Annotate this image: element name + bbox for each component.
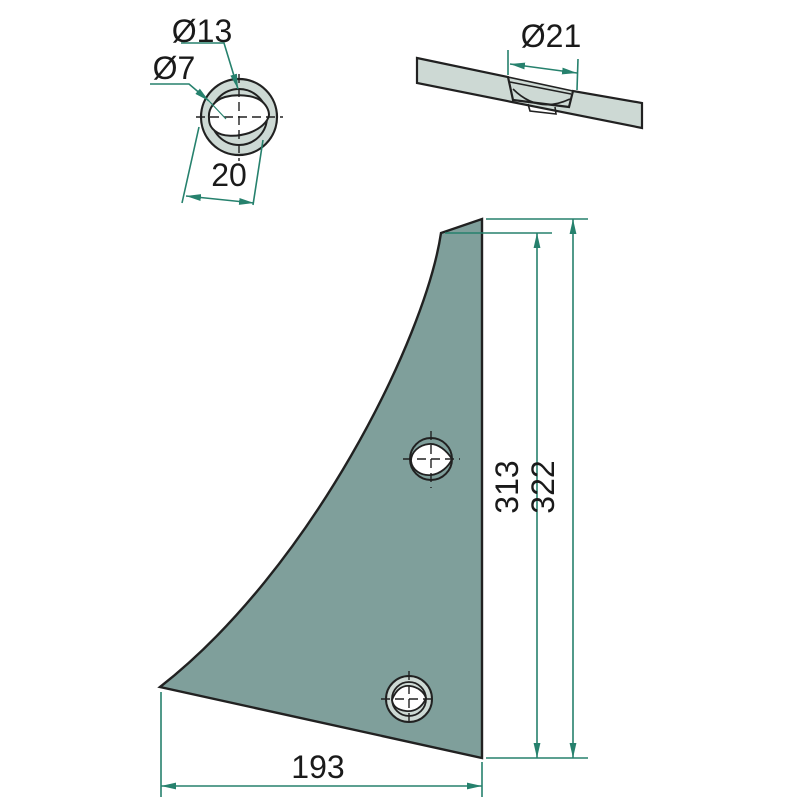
plate-outline: [160, 219, 482, 758]
dim-label-countersink: Ø21: [521, 18, 581, 54]
dim-label-height-outer: 322: [525, 460, 561, 513]
countersink-section-view: Ø21: [417, 18, 642, 128]
dim-countersink-line: [510, 64, 577, 73]
dim-label-width: 193: [291, 749, 344, 785]
leader-square-hole: [150, 84, 209, 101]
dim-od-line: [186, 196, 254, 203]
dim-label-height-inner: 313: [489, 460, 525, 513]
dim-label-bore: Ø13: [172, 13, 232, 49]
drawing-page: Ø13 Ø7 20 Ø21: [0, 0, 800, 800]
dim-label-od: 20: [211, 157, 247, 193]
profile-view: 313 322 193: [160, 219, 588, 797]
hub-detail-view: Ø13 Ø7 20: [150, 13, 283, 205]
dim-label-square: Ø7: [153, 50, 196, 86]
technical-drawing: Ø13 Ø7 20 Ø21: [0, 0, 800, 800]
